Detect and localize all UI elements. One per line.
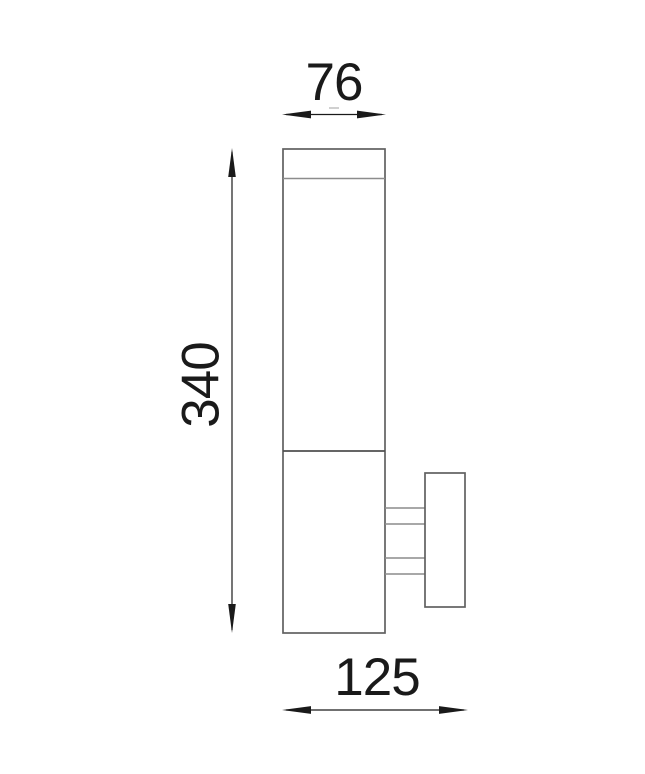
fixture-line-drawing (0, 0, 645, 774)
depth-dimension (282, 706, 468, 714)
height-dimension-label: 340 (175, 342, 228, 427)
height-dim-arrow-bottom-icon (228, 604, 236, 633)
width-dimension-label: 76 (306, 56, 363, 109)
wall-mount-plate-outline (425, 473, 465, 607)
depth-dim-arrow-right-icon (439, 706, 468, 714)
drawing-canvas: 76 340 125 (0, 0, 645, 774)
fixture-body-outline (283, 149, 385, 633)
depth-dimension-label: 125 (334, 651, 419, 704)
height-dim-arrow-top-icon (228, 148, 236, 177)
depth-dim-arrow-left-icon (282, 706, 311, 714)
